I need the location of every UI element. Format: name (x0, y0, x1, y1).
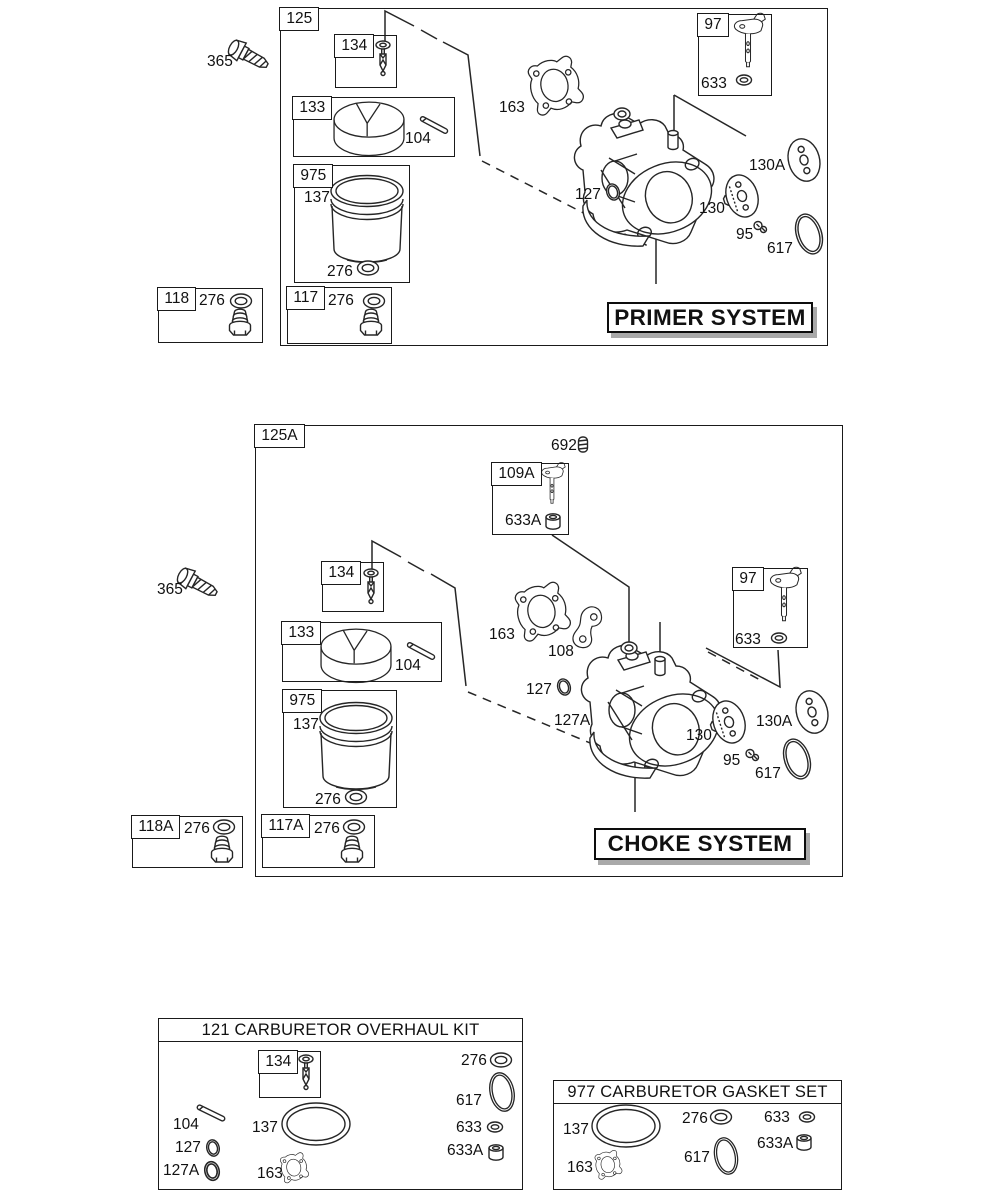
part-label-633: 633 (764, 1109, 790, 1128)
part-label-137: 137 (252, 1119, 278, 1138)
inset-box-134: 134 (335, 35, 397, 88)
inset-tab-975: 975 (282, 689, 322, 712)
gasket-set-box: 977 CARBURETOR GASKET SET (553, 1080, 842, 1190)
inset-tab-97: 97 (697, 13, 728, 36)
part-label-692: 692 (551, 437, 577, 456)
inset-tab-118A: 118A (131, 815, 180, 838)
part-label-130: 130 (686, 727, 712, 746)
choke-section-tab: 125A (254, 424, 304, 447)
part-label-104: 104 (395, 657, 421, 676)
part-label-633: 633 (701, 75, 727, 94)
carburetor-parts-diagram: 125 PRIMER SYSTEM 365 134 133 104 975 13… (0, 0, 1000, 1200)
part-label-127A: 127A (554, 712, 590, 731)
part-label-617: 617 (456, 1092, 482, 1111)
part-label-163: 163 (499, 99, 525, 118)
part-label-137: 137 (563, 1121, 589, 1140)
part-label-130: 130 (699, 200, 725, 219)
part-label-104: 104 (173, 1116, 199, 1135)
part-label-163: 163 (489, 626, 515, 645)
part-label-617: 617 (684, 1149, 710, 1168)
primer-section-tab: 125 (279, 7, 319, 30)
part-label-137: 137 (304, 189, 330, 208)
inset-tab-133: 133 (281, 621, 321, 644)
part-label-130A: 130A (756, 713, 792, 732)
part-label-276: 276 (328, 292, 354, 311)
part-label-276: 276 (461, 1052, 487, 1071)
inset-tab-117: 117 (286, 286, 325, 309)
part-label-104: 104 (405, 130, 431, 149)
part-label-127: 127 (526, 681, 552, 700)
part-label-617: 617 (767, 240, 793, 259)
part-label-137: 137 (293, 716, 319, 735)
inset-box-134: 134 (322, 562, 384, 612)
part-label-365: 365 (157, 581, 183, 600)
inset-box-134: 134 (259, 1051, 321, 1098)
inset-tab-118: 118 (157, 287, 196, 310)
part-label-127: 127 (175, 1139, 201, 1158)
part-label-108: 108 (548, 643, 574, 662)
part-label-163: 163 (257, 1165, 283, 1184)
part-label-276: 276 (682, 1110, 708, 1129)
part-label-127: 127 (575, 186, 601, 205)
part-label-633A: 633A (447, 1142, 483, 1161)
part-label-633A: 633A (757, 1135, 793, 1154)
inset-tab-133: 133 (292, 96, 332, 119)
inset-tab-134: 134 (321, 561, 361, 584)
part-label-617: 617 (755, 765, 781, 784)
part-label-130A: 130A (749, 157, 785, 176)
part-label-276: 276 (327, 263, 353, 282)
inset-tab-975: 975 (293, 164, 333, 187)
part-label-276: 276 (199, 292, 225, 311)
part-label-633: 633 (735, 631, 761, 650)
part-label-365: 365 (207, 53, 233, 72)
part-label-633: 633 (456, 1119, 482, 1138)
overhaul-kit-title: 121 CARBURETOR OVERHAUL KIT (159, 1019, 522, 1042)
inset-tab-109A: 109A (491, 462, 541, 485)
inset-tab-97: 97 (732, 567, 763, 590)
choke-system-title: CHOKE SYSTEM (594, 828, 806, 860)
part-label-276: 276 (315, 791, 341, 810)
inset-tab-134: 134 (258, 1050, 298, 1073)
part-label-127A: 127A (163, 1162, 199, 1181)
inset-tab-117A: 117A (261, 814, 310, 837)
part-label-163: 163 (567, 1159, 593, 1178)
part-label-633A: 633A (505, 512, 541, 531)
part-label-95: 95 (723, 752, 740, 771)
part-label-276: 276 (314, 820, 340, 839)
inset-tab-134: 134 (334, 34, 374, 57)
part-label-276: 276 (184, 820, 210, 839)
primer-system-title: PRIMER SYSTEM (607, 302, 813, 333)
gasket-set-title: 977 CARBURETOR GASKET SET (554, 1081, 841, 1104)
part-label-95: 95 (736, 226, 753, 245)
